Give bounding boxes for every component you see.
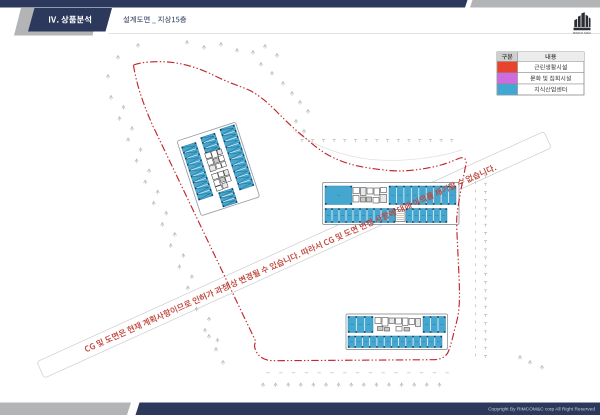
svg-text:Copyright By RIMCOM&C corp All: Copyright By RIMCOM&C corp All Right Res… (488, 407, 595, 413)
svg-text:RIMCO M&C: RIMCO M&C (573, 31, 592, 35)
